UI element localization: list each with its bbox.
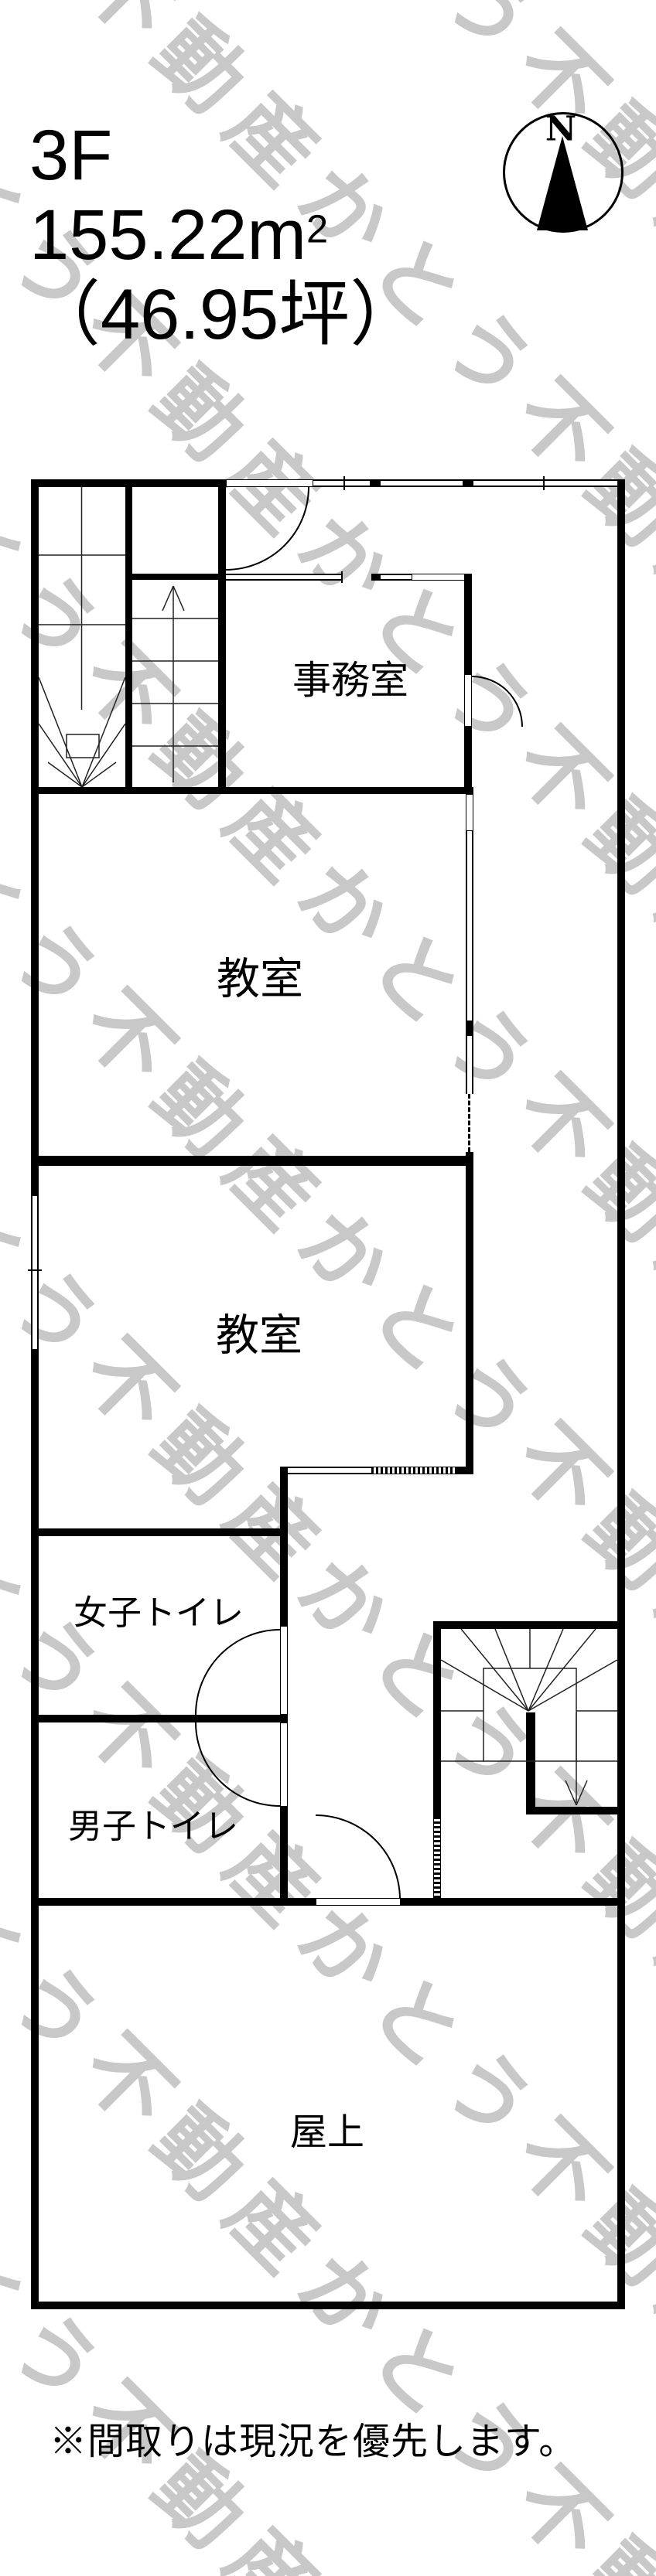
toilets-right-wall-bottom <box>280 1807 288 1898</box>
toilets-divider-wall <box>31 1715 288 1722</box>
wall-bottom <box>31 2302 625 2309</box>
womens-toilet-door-jamb <box>280 1626 288 1715</box>
office-right-wall-upper <box>464 574 472 674</box>
office-top-stub <box>371 574 381 581</box>
area-sqm-label: 155.22m2 <box>29 196 421 275</box>
room-label-womens-toilet: 女子トイレ <box>73 1585 244 1634</box>
window-tick <box>343 476 345 490</box>
top-window-stub-a <box>370 479 381 487</box>
office-top-door-jamb <box>412 574 465 581</box>
partition-dashed-segment <box>468 1094 470 1152</box>
window-tick <box>341 571 343 583</box>
rooftop-door-arc <box>316 1814 401 1900</box>
classroom-lower-bottom-wall <box>31 1528 288 1536</box>
rooftop-door-jamb <box>316 1898 401 1906</box>
classroom-lower-hatched-window <box>371 1467 456 1474</box>
wall-right <box>617 479 625 2309</box>
stairwell-lower-top-wall <box>433 1621 625 1629</box>
classroom-lower-window-jog <box>288 1467 371 1474</box>
stair-landing-bottom-wall <box>125 574 226 580</box>
classroom-upper-top-wall <box>31 787 473 794</box>
area-sqm-sup: 2 <box>306 207 328 251</box>
room-label-mens-toilet: 男子トイレ <box>68 1798 238 1848</box>
top-window-c <box>473 479 617 487</box>
floor-label: 3F <box>29 116 421 196</box>
compass-north-label: N <box>545 110 576 149</box>
office-door-arc <box>472 676 523 727</box>
plan-header: 3F 155.22m2 （46.95坪） <box>29 116 421 355</box>
stairwell-b-right-wall <box>218 479 226 787</box>
jog-stub <box>456 1467 466 1474</box>
room-label-classroom-upper: 教室 <box>217 945 303 1007</box>
room-label-rooftop: 屋上 <box>290 2101 364 2155</box>
office-top-window-b <box>381 574 412 581</box>
wall-left-lower <box>31 1349 39 2309</box>
classrooms-divider-wall <box>31 1156 473 1166</box>
office-door-jamb <box>464 674 472 727</box>
top-window-a <box>313 479 370 487</box>
stairwell-a-right-wall <box>125 486 132 787</box>
window-tick <box>28 1269 42 1271</box>
wall-left-upper <box>31 479 39 1196</box>
window-tick <box>543 476 545 490</box>
room-label-office: 事務室 <box>292 649 408 705</box>
stairs-down-flight-icon <box>441 1629 617 1814</box>
compass-needle-icon <box>537 136 588 230</box>
footnote-text: ※間取りは現況を優先します。 <box>50 2411 576 2465</box>
partition-window-b <box>466 1036 473 1094</box>
office-top-window-a <box>226 574 342 581</box>
entrance-door-jamb <box>226 479 313 487</box>
top-window-b <box>381 479 463 487</box>
entrance-door-arc <box>226 487 309 571</box>
hall-bottom-wall-right <box>401 1898 625 1906</box>
floor-plan-page: かとう不動産かとう不動産かとう不動産 かとう不動産かとう不動産かとう不動産 かと… <box>0 0 656 2576</box>
hall-bottom-wall-left <box>31 1898 316 1906</box>
stairwell-lower-left-wall <box>433 1621 441 1819</box>
stairs-upper-left-icon <box>39 486 125 789</box>
stairwell-lower-hatched-window <box>433 1819 441 1898</box>
partition-wall-solid <box>466 1152 473 1474</box>
stairs-up-flight-icon <box>132 580 218 787</box>
partition-window-a <box>466 831 473 1021</box>
left-wall-window <box>31 1196 39 1349</box>
partition-stub <box>466 1021 473 1036</box>
toilets-right-wall-top <box>280 1467 288 1626</box>
mens-toilet-door-jamb <box>280 1722 288 1807</box>
area-tsubo-label: （46.95坪） <box>29 275 421 355</box>
room-label-classroom-lower: 教室 <box>216 1301 302 1364</box>
top-window-stub-b <box>463 479 473 487</box>
office-right-wall-lower <box>464 727 472 794</box>
partition-door-jamb <box>466 794 473 831</box>
